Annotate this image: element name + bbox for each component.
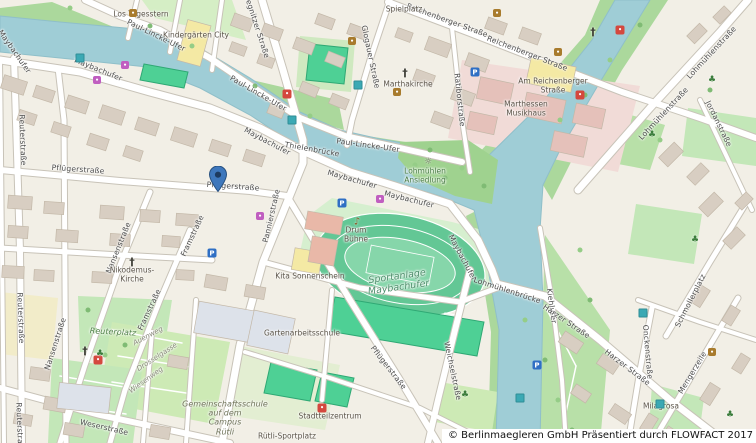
location-marker-pin[interactable] xyxy=(209,166,227,192)
map-base-layer xyxy=(0,0,756,443)
map-attribution: © Berlinmaegleren GmbH Präsentiert durch… xyxy=(442,429,756,443)
marker-pin-icon xyxy=(209,166,227,192)
map-canvas[interactable]: MaybachuferMaybachuferMaybachuferMaybach… xyxy=(0,0,756,443)
copyright-text: © Berlinmaegleren GmbH Präsentiert durch… xyxy=(448,430,753,441)
